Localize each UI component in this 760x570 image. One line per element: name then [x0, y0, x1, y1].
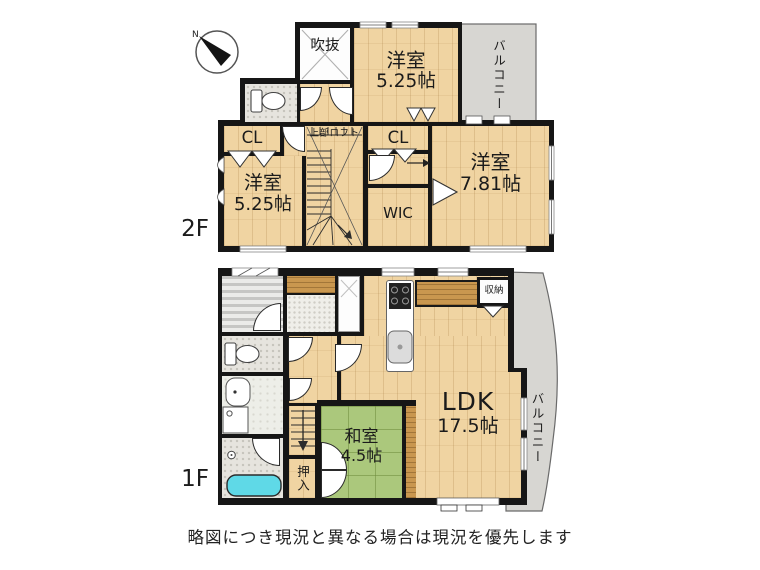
floor2-label: 2F [176, 216, 214, 244]
room-label-void: 吹抜 [300, 36, 350, 56]
kitchen-sink-icon [388, 331, 412, 363]
room-name: 洋室 [244, 173, 282, 194]
room-label-loft: 上部ロフト [306, 128, 363, 141]
toilet-1f-icon [225, 343, 259, 365]
room-name: 洋室 [471, 151, 511, 173]
arrow-2f-hall-icon [407, 159, 430, 167]
room-label-closet-mid: CL [368, 127, 428, 150]
north-compass-icon: N [192, 30, 238, 73]
room-size: 5.25帖 [376, 72, 436, 93]
svg-text:N: N [192, 30, 199, 40]
room-label-closet-left: CL [224, 127, 280, 150]
room-name: LDK [442, 388, 495, 416]
room-label-balcony-2f: バルコニー [488, 38, 508, 112]
toilet-2f-icon [251, 90, 285, 112]
disclaimer-text: 略図につき現況と異なる場合は現況を優先します [0, 524, 760, 548]
room-size: 7.81帖 [460, 174, 521, 195]
room-label-bedroom-right: 洋室 7.81帖 [432, 142, 549, 204]
cabinet-cross-icon [341, 280, 357, 297]
washbasin-icon [226, 378, 250, 406]
stairs-1f-icon [291, 410, 315, 451]
room-name: 和室 [345, 428, 379, 447]
shower-icon [228, 451, 236, 459]
floor1-label: 1F [176, 466, 214, 494]
stairs-2f-icon [307, 127, 362, 245]
room-size: 17.5帖 [437, 416, 498, 437]
room-size: 5.25帖 [234, 195, 292, 215]
floor-plan-canvas: N [0, 0, 760, 570]
room-label-bedroom-left: 洋室 5.25帖 [224, 166, 302, 222]
bathtub-icon [227, 475, 281, 496]
room-label-washitsu: 和室 4.5帖 [321, 418, 402, 474]
room-label-storage: 収納 [478, 282, 510, 300]
stove-icon [389, 283, 411, 309]
room-label-bedroom-top: 洋室 5.25帖 [354, 42, 458, 100]
room-name: 洋室 [386, 50, 425, 72]
room-label-balcony-1f: バルコニー [527, 378, 546, 478]
washing-machine-icon [223, 407, 248, 433]
room-label-oshiire: 押入 [291, 458, 313, 498]
room-size: 4.5帖 [341, 447, 382, 465]
room-label-ldk: LDK 17.5帖 [408, 382, 528, 444]
room-label-wic: WIC [368, 198, 428, 228]
